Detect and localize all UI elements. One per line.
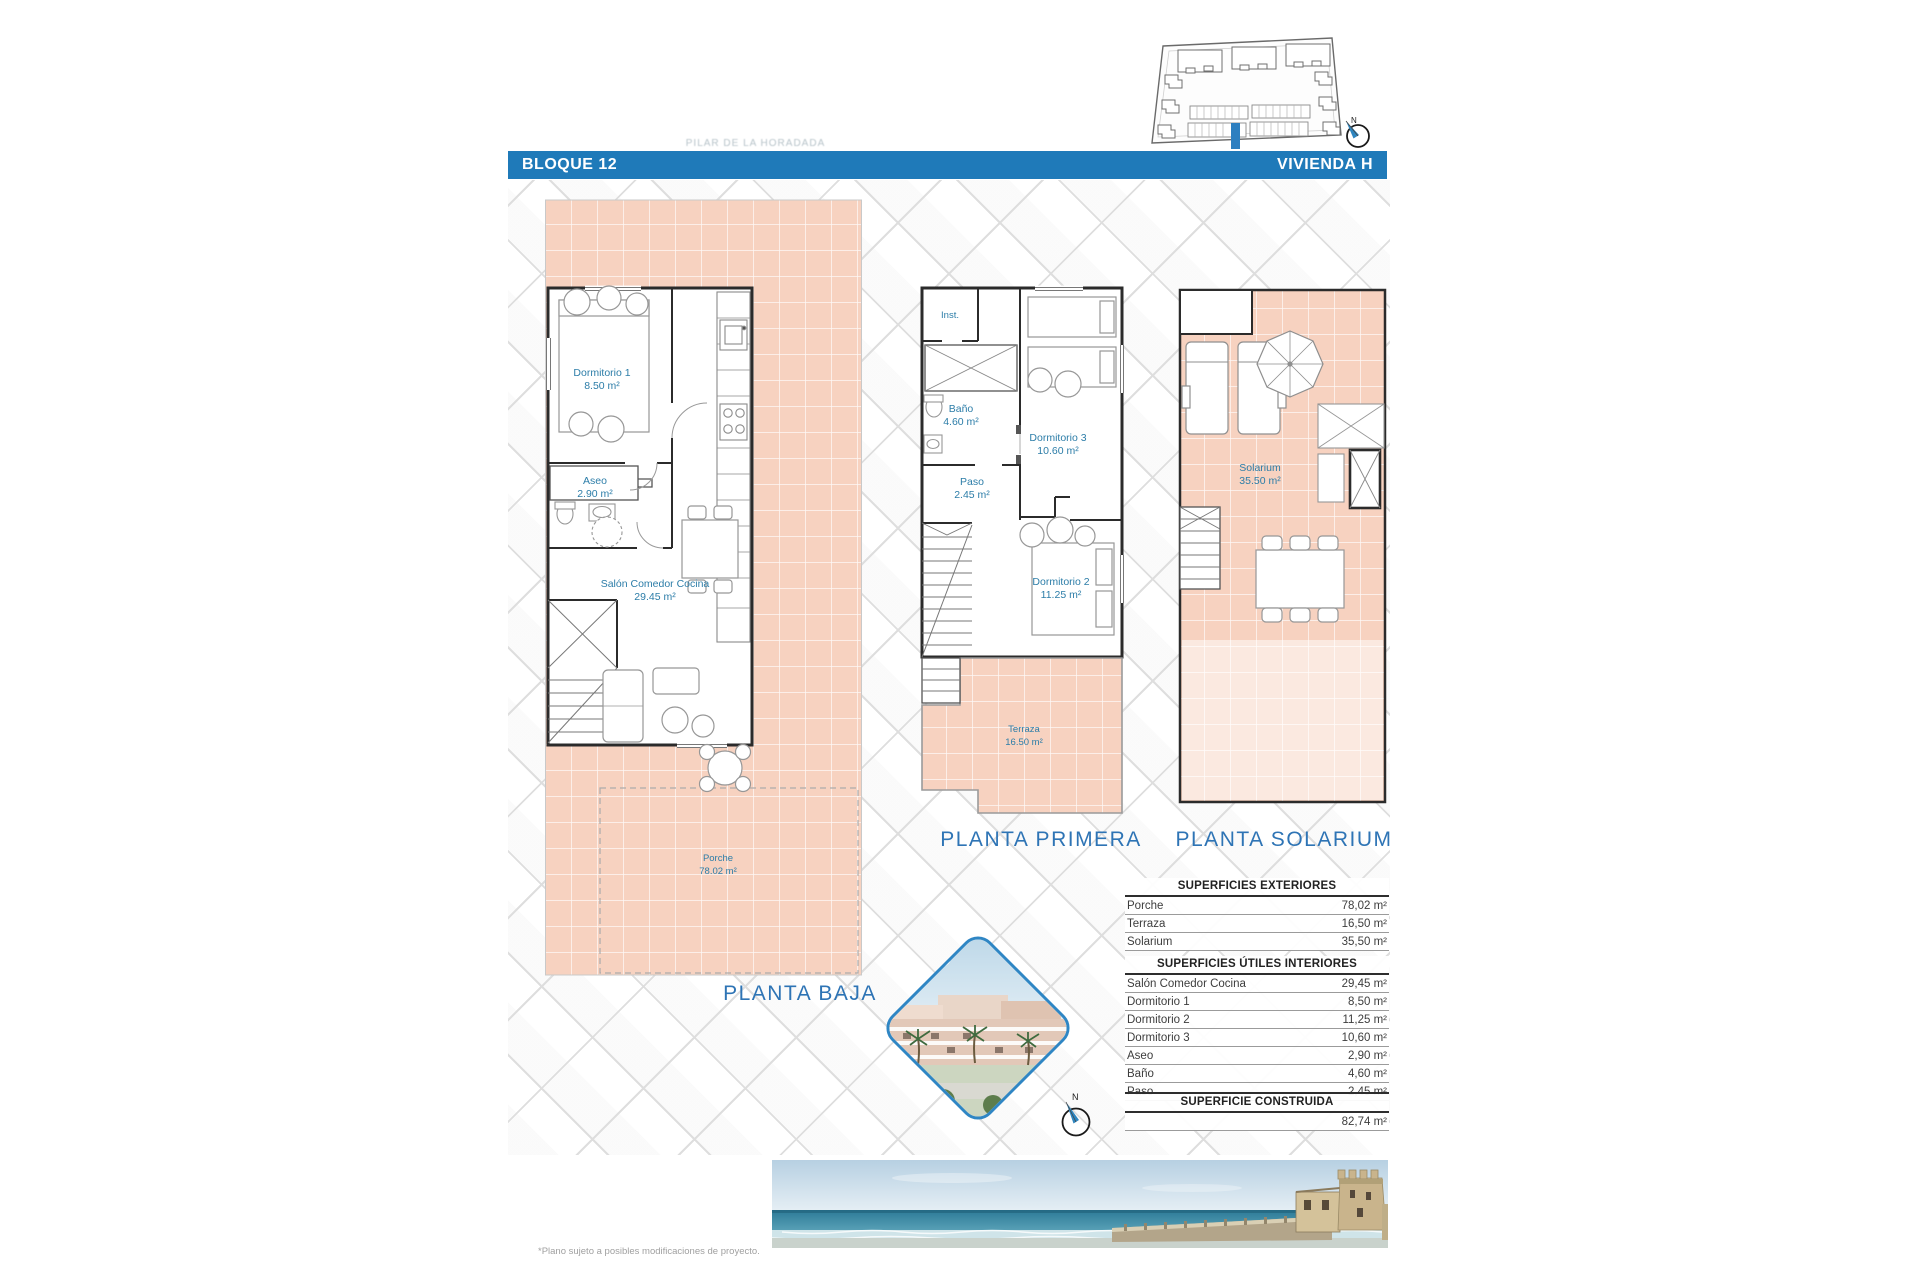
svg-text:Aseo: Aseo <box>583 475 607 487</box>
svg-text:11.25 m²: 11.25 m² <box>1041 589 1082 601</box>
svg-text:35.50 m²: 35.50 m² <box>1239 475 1281 487</box>
planta-solarium-plan: Solarium 35.50 m² <box>1178 282 1390 807</box>
svg-text:Dormitorio 3: Dormitorio 3 <box>1029 432 1086 444</box>
built-surface-value: 82,74 m² <box>1125 1113 1389 1131</box>
disclaimer-footnote: *Plano sujeto a posibles modificaciones … <box>538 1246 760 1257</box>
svg-text:N: N <box>1351 116 1357 125</box>
table-row: Baño4,60 m² <box>1125 1065 1389 1083</box>
svg-text:Salón Comedor Cocina: Salón Comedor Cocina <box>601 578 710 590</box>
svg-text:Baño: Baño <box>949 403 974 415</box>
table-row: Solarium35,50 m² <box>1125 933 1389 951</box>
svg-text:Dormitorio 1: Dormitorio 1 <box>573 367 630 379</box>
table-row: Salón Comedor Cocina29,45 m² <box>1125 975 1389 993</box>
svg-text:Dormitorio 2: Dormitorio 2 <box>1032 576 1089 588</box>
svg-text:Inst.: Inst. <box>941 310 959 321</box>
built-surface-table: SUPERFICIE CONSTRUIDA 82,74 m² <box>1125 1092 1389 1131</box>
table-row: Dormitorio 211,25 m² <box>1125 1011 1389 1029</box>
highlighted-unit <box>1231 123 1240 149</box>
header-bar: BLOQUE 12 VIVIENDA H <box>508 151 1387 179</box>
interior-surfaces-table: SUPERFICIES ÚTILES INTERIORES Salón Come… <box>1125 956 1389 1101</box>
watermark-text: PILAR DE LA HORADADA <box>648 138 863 149</box>
planta-baja-plan: Dormitorio 1 8.50 m² Aseo 2.90 m² Salón … <box>545 198 863 980</box>
table-header: SUPERFICIE CONSTRUIDA <box>1125 1094 1389 1113</box>
svg-text:10.60 m²: 10.60 m² <box>1037 445 1079 457</box>
svg-text:N: N <box>1072 1092 1079 1102</box>
table-row: Dormitorio 18,50 m² <box>1125 993 1389 1011</box>
table-row: Aseo2,90 m² <box>1125 1047 1389 1065</box>
svg-text:2.90 m²: 2.90 m² <box>577 488 613 500</box>
planta-primera-title: PLANTA PRIMERA <box>931 828 1151 852</box>
dwelling-title: VIVIENDA H <box>1277 156 1373 174</box>
planta-primera-plan: Inst. Baño 4.60 m² Paso 2.45 m² Dormitor… <box>920 285 1125 815</box>
plan-sheet: PILAR DE LA HORADADA BLOQUE 12 VIVIENDA … <box>0 0 1920 1280</box>
table-header: SUPERFICIES EXTERIORES <box>1125 878 1389 897</box>
svg-text:Solarium: Solarium <box>1239 462 1281 474</box>
table-row: Terraza16,50 m² <box>1125 915 1389 933</box>
site-location-plan: N <box>1140 28 1380 153</box>
table-header: SUPERFICIES ÚTILES INTERIORES <box>1125 956 1389 975</box>
exterior-surfaces-table: SUPERFICIES EXTERIORES Porche78,02 m² Te… <box>1125 878 1389 951</box>
block-title: BLOQUE 12 <box>522 156 617 174</box>
svg-text:2.45 m²: 2.45 m² <box>954 489 990 501</box>
svg-text:Paso: Paso <box>960 476 984 488</box>
north-compass-icon: N <box>1052 1088 1100 1142</box>
planta-solarium-title: PLANTA SOLARIUM <box>1174 828 1394 852</box>
svg-text:4.60 m²: 4.60 m² <box>943 416 979 428</box>
table-row: Porche78,02 m² <box>1125 897 1389 915</box>
svg-text:Terraza: Terraza <box>1008 724 1040 735</box>
svg-text:78.02 m²: 78.02 m² <box>699 866 737 877</box>
table-row: Dormitorio 310,60 m² <box>1125 1029 1389 1047</box>
north-compass-icon: N <box>1346 116 1369 147</box>
beach-tower-photo <box>772 1160 1388 1248</box>
svg-text:29.45 m²: 29.45 m² <box>634 591 676 603</box>
svg-text:16.50 m²: 16.50 m² <box>1005 737 1043 748</box>
svg-text:8.50 m²: 8.50 m² <box>584 380 620 392</box>
svg-text:Porche: Porche <box>703 853 733 864</box>
